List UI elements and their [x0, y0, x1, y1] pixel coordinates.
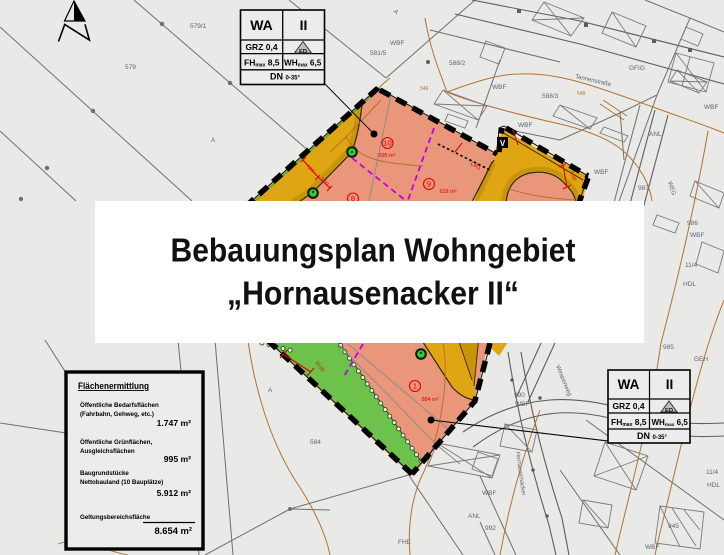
svg-text:GEH: GEH	[694, 356, 708, 363]
svg-text:Baugrundstücke: Baugrundstücke	[80, 470, 129, 477]
svg-text:1.747 m²: 1.747 m²	[157, 418, 192, 428]
svg-text:WBF: WBF	[690, 232, 704, 239]
svg-text:WBF: WBF	[704, 104, 718, 111]
svg-text:11/4: 11/4	[706, 469, 719, 476]
svg-text:V: V	[500, 139, 506, 148]
svg-text:„Hornausenacker II“: „Hornausenacker II“	[227, 275, 519, 312]
svg-text:WA: WA	[618, 377, 640, 392]
svg-text:II: II	[666, 377, 674, 392]
svg-text:546: 546	[420, 86, 429, 92]
svg-text:9: 9	[427, 180, 431, 189]
svg-text:Ausgleichsflächen: Ausgleichsflächen	[80, 448, 135, 455]
svg-text:Öffentliche Bedarfsflächen: Öffentliche Bedarfsflächen	[80, 402, 159, 409]
svg-text:Öffentliche Grünflächen,: Öffentliche Grünflächen,	[80, 439, 152, 446]
svg-text:618 m²: 618 m²	[439, 189, 456, 195]
svg-text:GRZ 0,4: GRZ 0,4	[245, 42, 277, 52]
svg-text:987: 987	[638, 185, 649, 192]
svg-text:581/5: 581/5	[370, 50, 387, 57]
svg-text:ANL: ANL	[468, 513, 481, 520]
svg-text:WBF: WBF	[492, 84, 506, 91]
svg-text:GFIG: GFIG	[629, 65, 645, 72]
svg-text:Geltungsbereichsfläche: Geltungsbereichsfläche	[80, 514, 151, 521]
svg-text:A: A	[211, 137, 216, 144]
svg-text:Nettobauland (10 Bauplätze): Nettobauland (10 Bauplätze)	[80, 479, 163, 486]
svg-text:HDL: HDL	[683, 281, 696, 288]
svg-text:WBF: WBF	[645, 544, 659, 551]
svg-text:WBF: WBF	[515, 401, 529, 408]
svg-text:Flächenermittlung: Flächenermittlung	[78, 381, 149, 391]
svg-text:595 m²: 595 m²	[378, 153, 395, 159]
svg-text:ANL: ANL	[649, 131, 662, 138]
svg-text:WBF: WBF	[594, 169, 608, 176]
svg-text:ED: ED	[299, 49, 307, 55]
svg-text:992: 992	[485, 525, 496, 532]
svg-text:588/3: 588/3	[542, 93, 559, 100]
svg-text:WBF: WBF	[518, 122, 532, 129]
svg-text:ED: ED	[665, 408, 673, 414]
svg-text:A: A	[268, 387, 273, 394]
svg-text:5.912 m²: 5.912 m²	[157, 488, 192, 498]
svg-text:II: II	[300, 17, 308, 33]
svg-text:WBF: WBF	[482, 490, 496, 497]
svg-text:8.654 m²: 8.654 m²	[154, 525, 192, 536]
svg-text:579: 579	[125, 64, 136, 71]
svg-text:985: 985	[663, 344, 674, 351]
svg-text:10: 10	[383, 139, 391, 148]
svg-text:995 m²: 995 m²	[164, 454, 191, 464]
svg-text:(Fahrbahn, Gehweg, etc.): (Fahrbahn, Gehweg, etc.)	[80, 411, 154, 418]
svg-text:945: 945	[668, 523, 679, 530]
svg-text:588/2: 588/2	[449, 60, 466, 67]
svg-text:WA: WA	[250, 17, 273, 33]
svg-text:884 m²: 884 m²	[421, 397, 438, 403]
svg-text:HDL: HDL	[707, 482, 720, 489]
svg-text:1: 1	[413, 382, 417, 391]
svg-text:GRZ 0,4: GRZ 0,4	[612, 401, 644, 411]
svg-text:579/1: 579/1	[190, 23, 207, 30]
svg-text:986: 986	[687, 220, 698, 227]
svg-text:990: 990	[514, 392, 525, 399]
svg-text:548: 548	[577, 91, 586, 97]
svg-text:584: 584	[310, 439, 321, 446]
svg-text:WBF: WBF	[390, 40, 404, 47]
svg-text:11/4: 11/4	[685, 262, 698, 269]
svg-text:Bebauungsplan Wohngebiet: Bebauungsplan Wohngebiet	[171, 232, 576, 269]
